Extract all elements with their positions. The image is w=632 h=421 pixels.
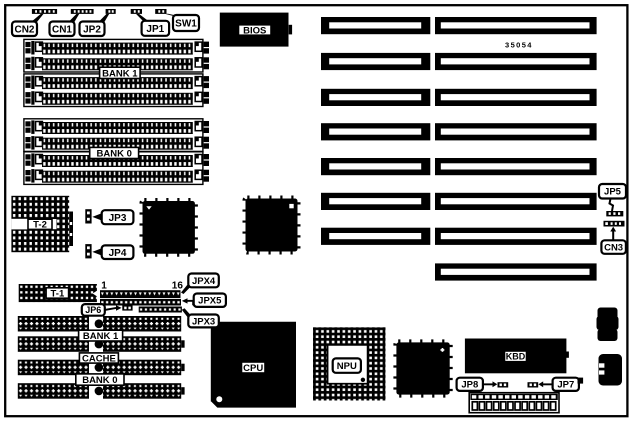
svg-text:BANK 1: BANK 1 <box>102 68 138 79</box>
svg-text:JP7: JP7 <box>557 380 574 391</box>
svg-text:JP3: JP3 <box>109 213 127 224</box>
svg-text:T-2: T-2 <box>33 220 47 231</box>
svg-text:JPX4: JPX4 <box>192 276 216 287</box>
svg-text:16: 16 <box>172 281 184 292</box>
svg-text:JP2: JP2 <box>83 24 101 35</box>
svg-text:JP4: JP4 <box>109 248 127 259</box>
svg-text:BANK 1: BANK 1 <box>83 331 119 342</box>
svg-text:35054: 35054 <box>505 41 533 50</box>
svg-text:JPX3: JPX3 <box>192 316 215 327</box>
svg-text:NPU: NPU <box>337 361 357 372</box>
svg-text:CPU: CPU <box>243 363 263 374</box>
svg-text:JP1: JP1 <box>146 24 164 35</box>
svg-text:CN3: CN3 <box>604 243 623 254</box>
svg-text:CN1: CN1 <box>52 24 72 35</box>
svg-text:BIOS: BIOS <box>243 25 266 36</box>
svg-text:T-1: T-1 <box>51 288 65 299</box>
svg-text:JP6: JP6 <box>85 305 101 315</box>
svg-text:BANK 0: BANK 0 <box>82 375 117 386</box>
svg-text:BANK 0: BANK 0 <box>97 148 132 159</box>
svg-text:JP8: JP8 <box>461 380 478 391</box>
svg-text:CN2: CN2 <box>14 24 34 35</box>
svg-text:1: 1 <box>101 281 107 292</box>
svg-text:JP5: JP5 <box>604 187 622 198</box>
svg-text:CACHE: CACHE <box>82 353 116 364</box>
svg-text:JPX5: JPX5 <box>198 296 222 307</box>
svg-text:KBD: KBD <box>506 352 526 362</box>
svg-text:SW1: SW1 <box>175 19 197 30</box>
